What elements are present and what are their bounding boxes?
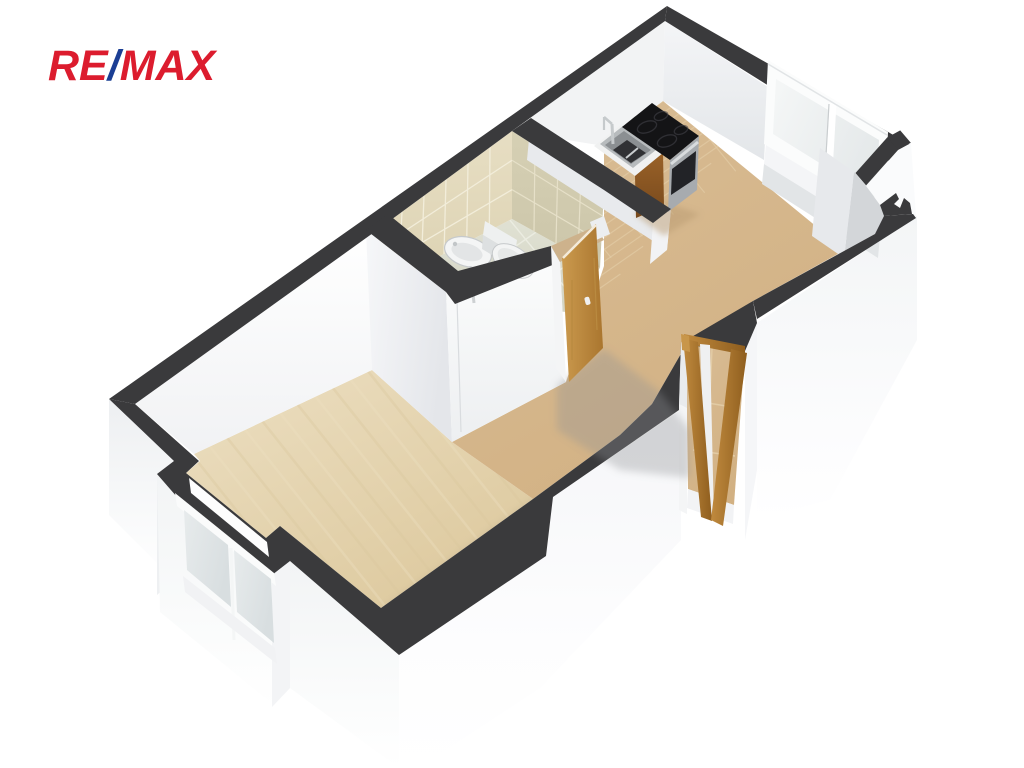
svg-text:RE/MAX: RE/MAX: [48, 42, 218, 90]
